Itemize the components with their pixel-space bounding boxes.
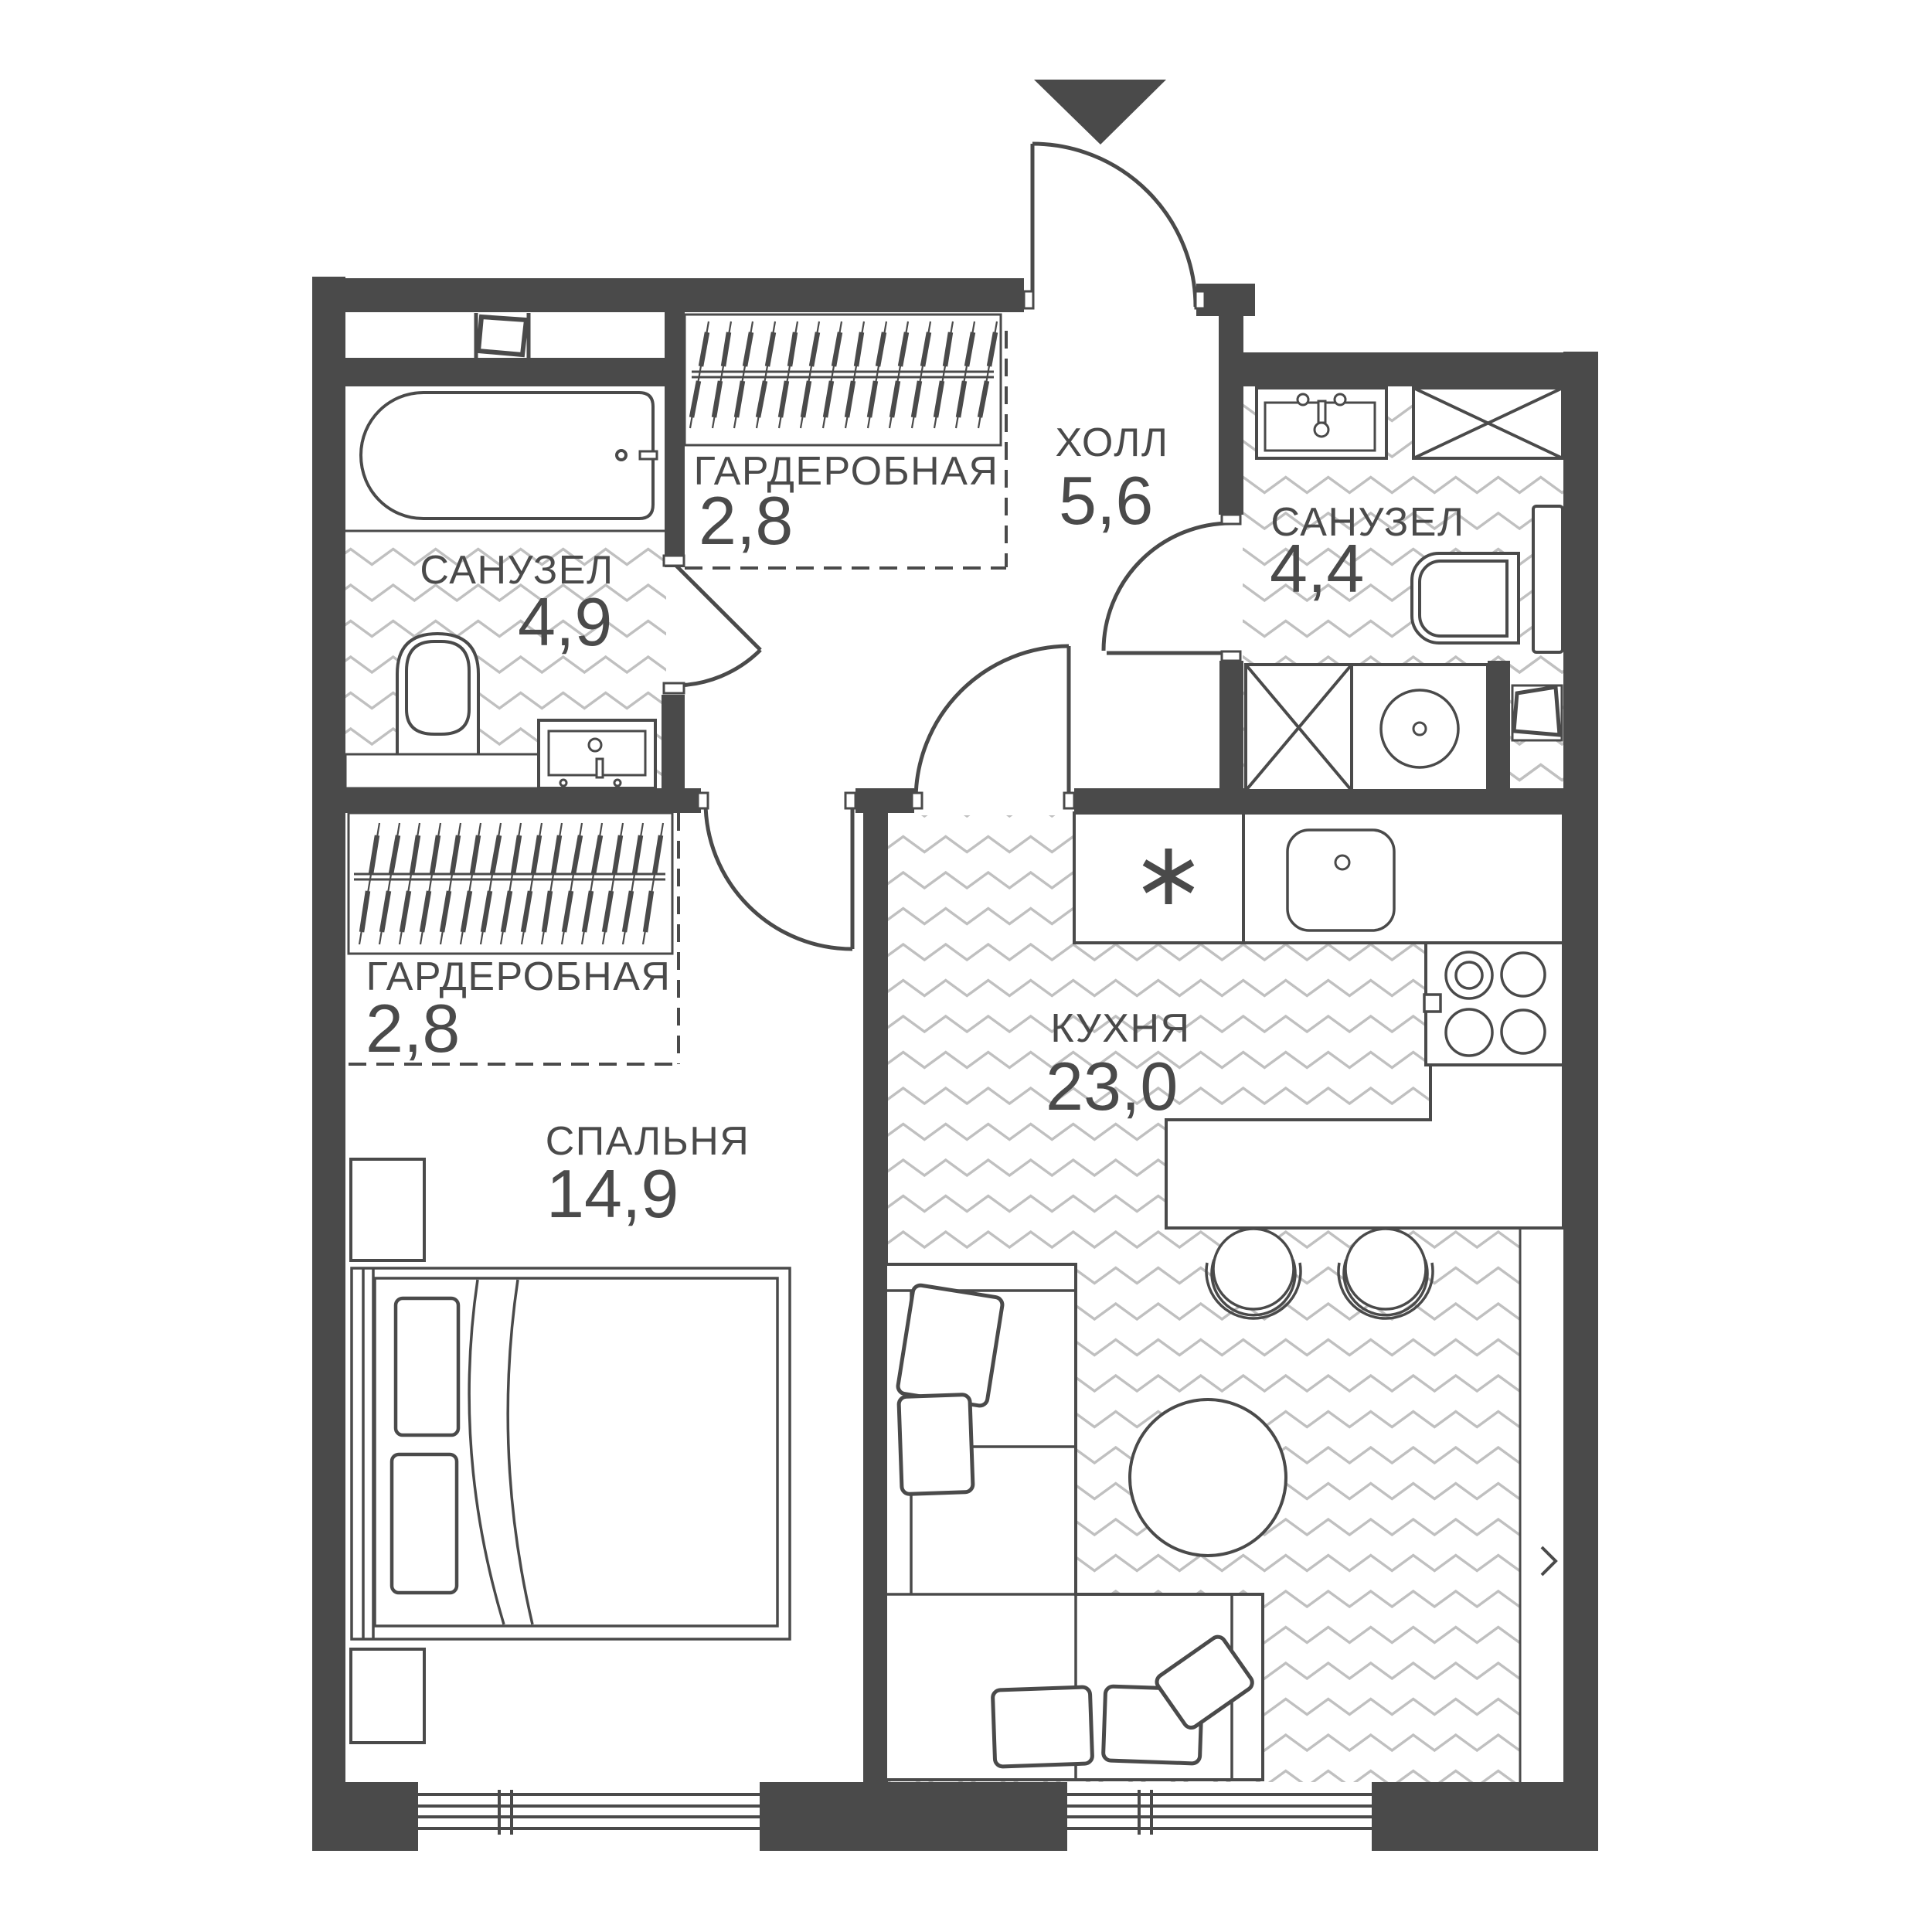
svg-text:5,6: 5,6 bbox=[1059, 462, 1153, 539]
svg-text:4,4: 4,4 bbox=[1270, 530, 1364, 607]
svg-text:23,0: 23,0 bbox=[1046, 1048, 1178, 1124]
svg-text:4,9: 4,9 bbox=[518, 583, 612, 660]
svg-text:2,8: 2,8 bbox=[366, 990, 460, 1066]
svg-text:14,9: 14,9 bbox=[546, 1155, 679, 1232]
svg-text:2,8: 2,8 bbox=[699, 482, 793, 559]
svg-text:ХОЛЛ: ХОЛЛ bbox=[1055, 420, 1168, 465]
svg-text:КУХНЯ: КУХНЯ bbox=[1050, 1006, 1190, 1051]
